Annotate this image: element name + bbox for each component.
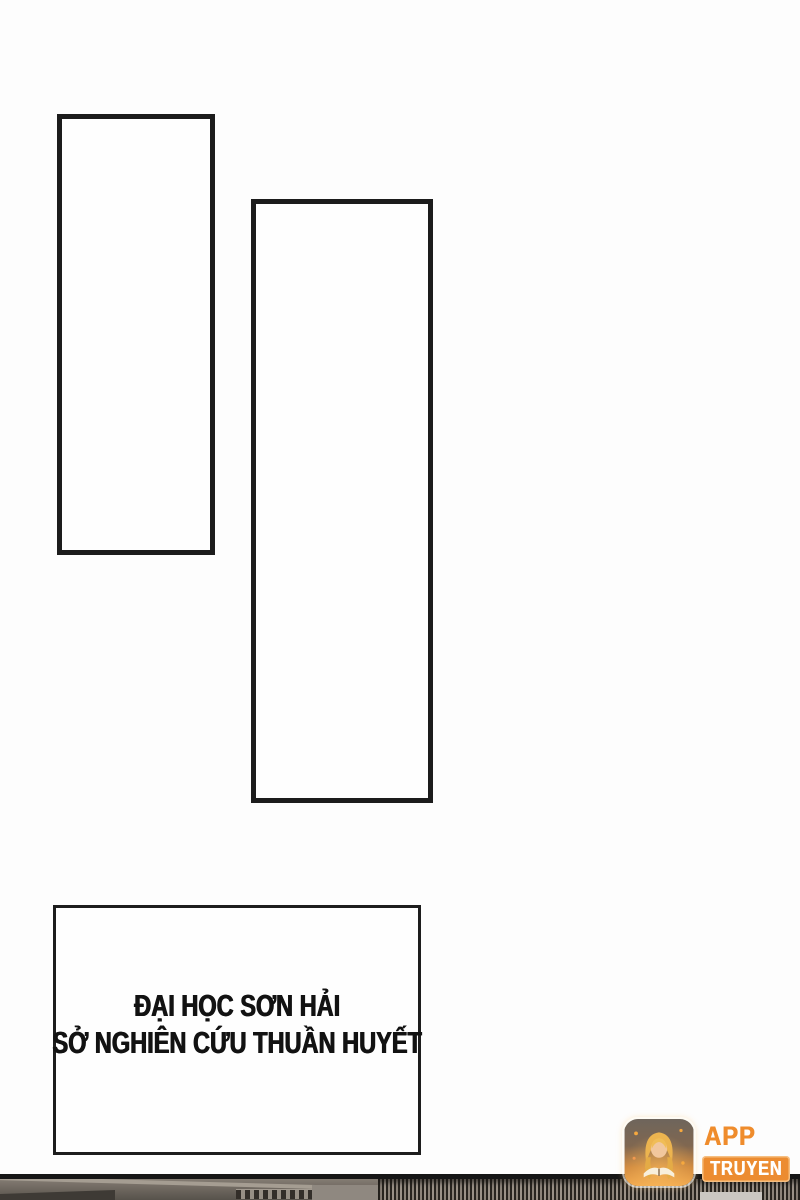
next-panel-top-edge [0, 1174, 800, 1200]
light-wall [700, 1192, 762, 1200]
empty-panel-right [251, 199, 433, 803]
caption-line-2: SỞ NGHIÊN CỨU THUẦN HUYẾT [52, 1024, 422, 1061]
caption-box: ĐẠI HỌC SƠN HẢI SỞ NGHIÊN CỨU THUẦN HUYẾ… [53, 905, 421, 1155]
window-row [236, 1189, 312, 1199]
building-interior-artwork [0, 1179, 800, 1200]
wall-panel [312, 1185, 378, 1200]
dark-corner [0, 1190, 115, 1200]
comic-page: ĐẠI HỌC SƠN HẢI SỞ NGHIÊN CỨU THUẦN HUYẾ… [0, 0, 800, 1200]
empty-panel-left [57, 114, 215, 555]
caption-text: ĐẠI HỌC SƠN HẢI SỞ NGHIÊN CỨU THUẦN HUYẾ… [52, 987, 422, 1061]
watermark-app-label: APP [704, 1121, 783, 1152]
caption-line-1: ĐẠI HỌC SƠN HẢI [52, 987, 422, 1024]
